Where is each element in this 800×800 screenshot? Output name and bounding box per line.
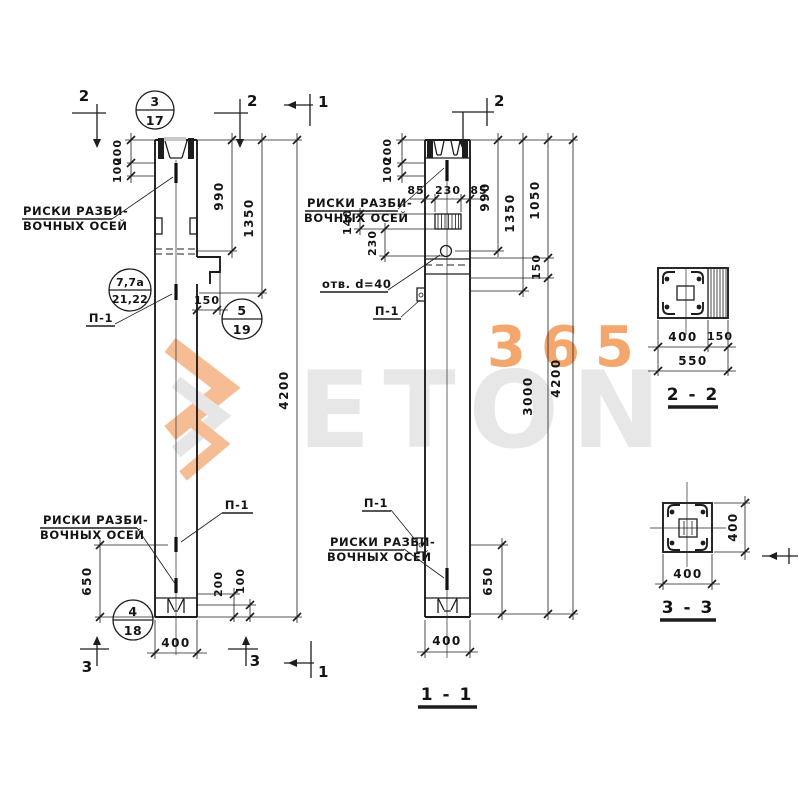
drawing-sheet: ETON 365 xyxy=(0,0,800,800)
note-axis-top-left-2: ВОЧНЫХ ОСЕЙ xyxy=(23,218,128,233)
svg-text:2: 2 xyxy=(494,92,504,110)
note-axis-bottom-left-2: ВОЧНЫХ ОСЕЙ xyxy=(40,527,145,542)
dim-1350-mid: 1350 xyxy=(503,193,517,232)
dim-650-left: 650 xyxy=(80,566,94,596)
svg-text:5: 5 xyxy=(237,303,246,318)
dim-100-left-bottom: 100 xyxy=(234,568,247,594)
dim-200-left-bottom: 200 xyxy=(212,571,225,597)
note-plate-mid-bottom: П-1 xyxy=(364,496,388,510)
svg-text:21,22: 21,22 xyxy=(112,293,148,306)
note-axis-mid-bottom-2: ВОЧНЫХ ОСЕЙ xyxy=(327,549,432,564)
plate-top xyxy=(417,288,425,301)
marker-1-bottom: 1 xyxy=(284,641,328,681)
callout-3-17: 3 17 xyxy=(136,91,174,129)
svg-text:2: 2 xyxy=(247,92,257,110)
dim-990-left: 990 xyxy=(212,181,226,211)
dim-150-s22: 150 xyxy=(707,330,733,343)
dim-150-mid: 150 xyxy=(530,254,543,280)
note-plate-mid-top: П-1 xyxy=(375,304,399,318)
dim-400-s22: 400 xyxy=(668,330,698,344)
marker-2-top-left: 2 xyxy=(72,87,106,148)
note-axis-mid-top-1: РИСКИ РАЗБИ- xyxy=(307,196,412,210)
svg-text:4: 4 xyxy=(128,604,137,619)
slot-hatched xyxy=(435,214,461,229)
dim-550-s22: 550 xyxy=(678,354,708,368)
watermark-number: 365 xyxy=(487,315,649,380)
svg-text:7,7а: 7,7а xyxy=(116,276,144,289)
svg-text:3: 3 xyxy=(150,94,159,109)
hatch-strip xyxy=(711,269,726,317)
note-plate-top-left: П-1 xyxy=(89,311,113,325)
svg-text:2: 2 xyxy=(79,87,89,105)
marker-1-top: 1 xyxy=(284,93,328,126)
note-axis-bottom-left-1: РИСКИ РАЗБИ- xyxy=(43,513,148,527)
note-axis-top-left-1: РИСКИ РАЗБИ- xyxy=(23,204,128,218)
section-title-2-2: 2 - 2 xyxy=(667,385,720,405)
dim-100-mid-top: 100 xyxy=(381,157,394,183)
watermark-logo-icon xyxy=(170,345,226,476)
dim-150-corbel: 150 xyxy=(194,294,220,307)
note-plate-bottom-left: П-1 xyxy=(225,498,249,512)
marker-arrow-far-right xyxy=(762,548,798,564)
svg-text:19: 19 xyxy=(233,322,251,337)
drawing-canvas: ETON 365 xyxy=(0,0,800,800)
callout-4-18: 4 18 xyxy=(113,600,153,640)
dim-1350-left: 1350 xyxy=(242,198,256,237)
dim-4200-left: 4200 xyxy=(277,370,291,409)
column-top-cap xyxy=(164,137,186,141)
dim-230-slot: 230 xyxy=(435,184,461,197)
note-hole: отв. d=40 xyxy=(322,277,392,291)
section-title-3-3: 3 - 3 xyxy=(662,598,715,618)
dim-400-s33-right: 400 xyxy=(726,512,740,542)
dim-230-vert: 230 xyxy=(366,230,379,256)
marker-3-bottom-left: 3 xyxy=(80,636,109,676)
dim-990-mid: 990 xyxy=(478,182,492,212)
dim-3000: 3000 xyxy=(521,376,535,415)
svg-text:3: 3 xyxy=(82,658,92,676)
dim-1050: 1050 xyxy=(528,180,542,219)
dim-650-mid: 650 xyxy=(481,566,495,596)
core-duct xyxy=(677,286,694,300)
svg-text:17: 17 xyxy=(146,113,164,128)
dim-400-mid-bottom: 400 xyxy=(432,634,462,648)
note-axis-mid-top-2: ВОЧНЫХ ОСЕЙ xyxy=(304,210,409,225)
svg-text:1: 1 xyxy=(318,663,328,681)
dim-400-s33-bottom: 400 xyxy=(673,567,703,581)
dim-4200-mid: 4200 xyxy=(549,358,563,397)
hole-d40 xyxy=(441,246,452,257)
dim-100-left-top: 100 xyxy=(111,157,124,183)
svg-text:1: 1 xyxy=(318,93,328,111)
callout-5-19: 5 19 xyxy=(222,299,262,339)
svg-text:18: 18 xyxy=(124,623,142,638)
section-title-1-1: 1 - 1 xyxy=(418,685,477,707)
section-3-3: 400 400 3 - 3 xyxy=(650,482,750,620)
marker-3-bottom-right: 3 xyxy=(228,636,260,670)
svg-text:1 - 1: 1 - 1 xyxy=(421,685,474,705)
svg-text:3: 3 xyxy=(250,652,260,670)
note-axis-mid-bottom-1: РИСКИ РАЗБИ- xyxy=(330,535,435,549)
dim-400-left-bottom: 400 xyxy=(161,636,191,650)
callout-7-21: 7,7а 21,22 xyxy=(109,269,151,311)
